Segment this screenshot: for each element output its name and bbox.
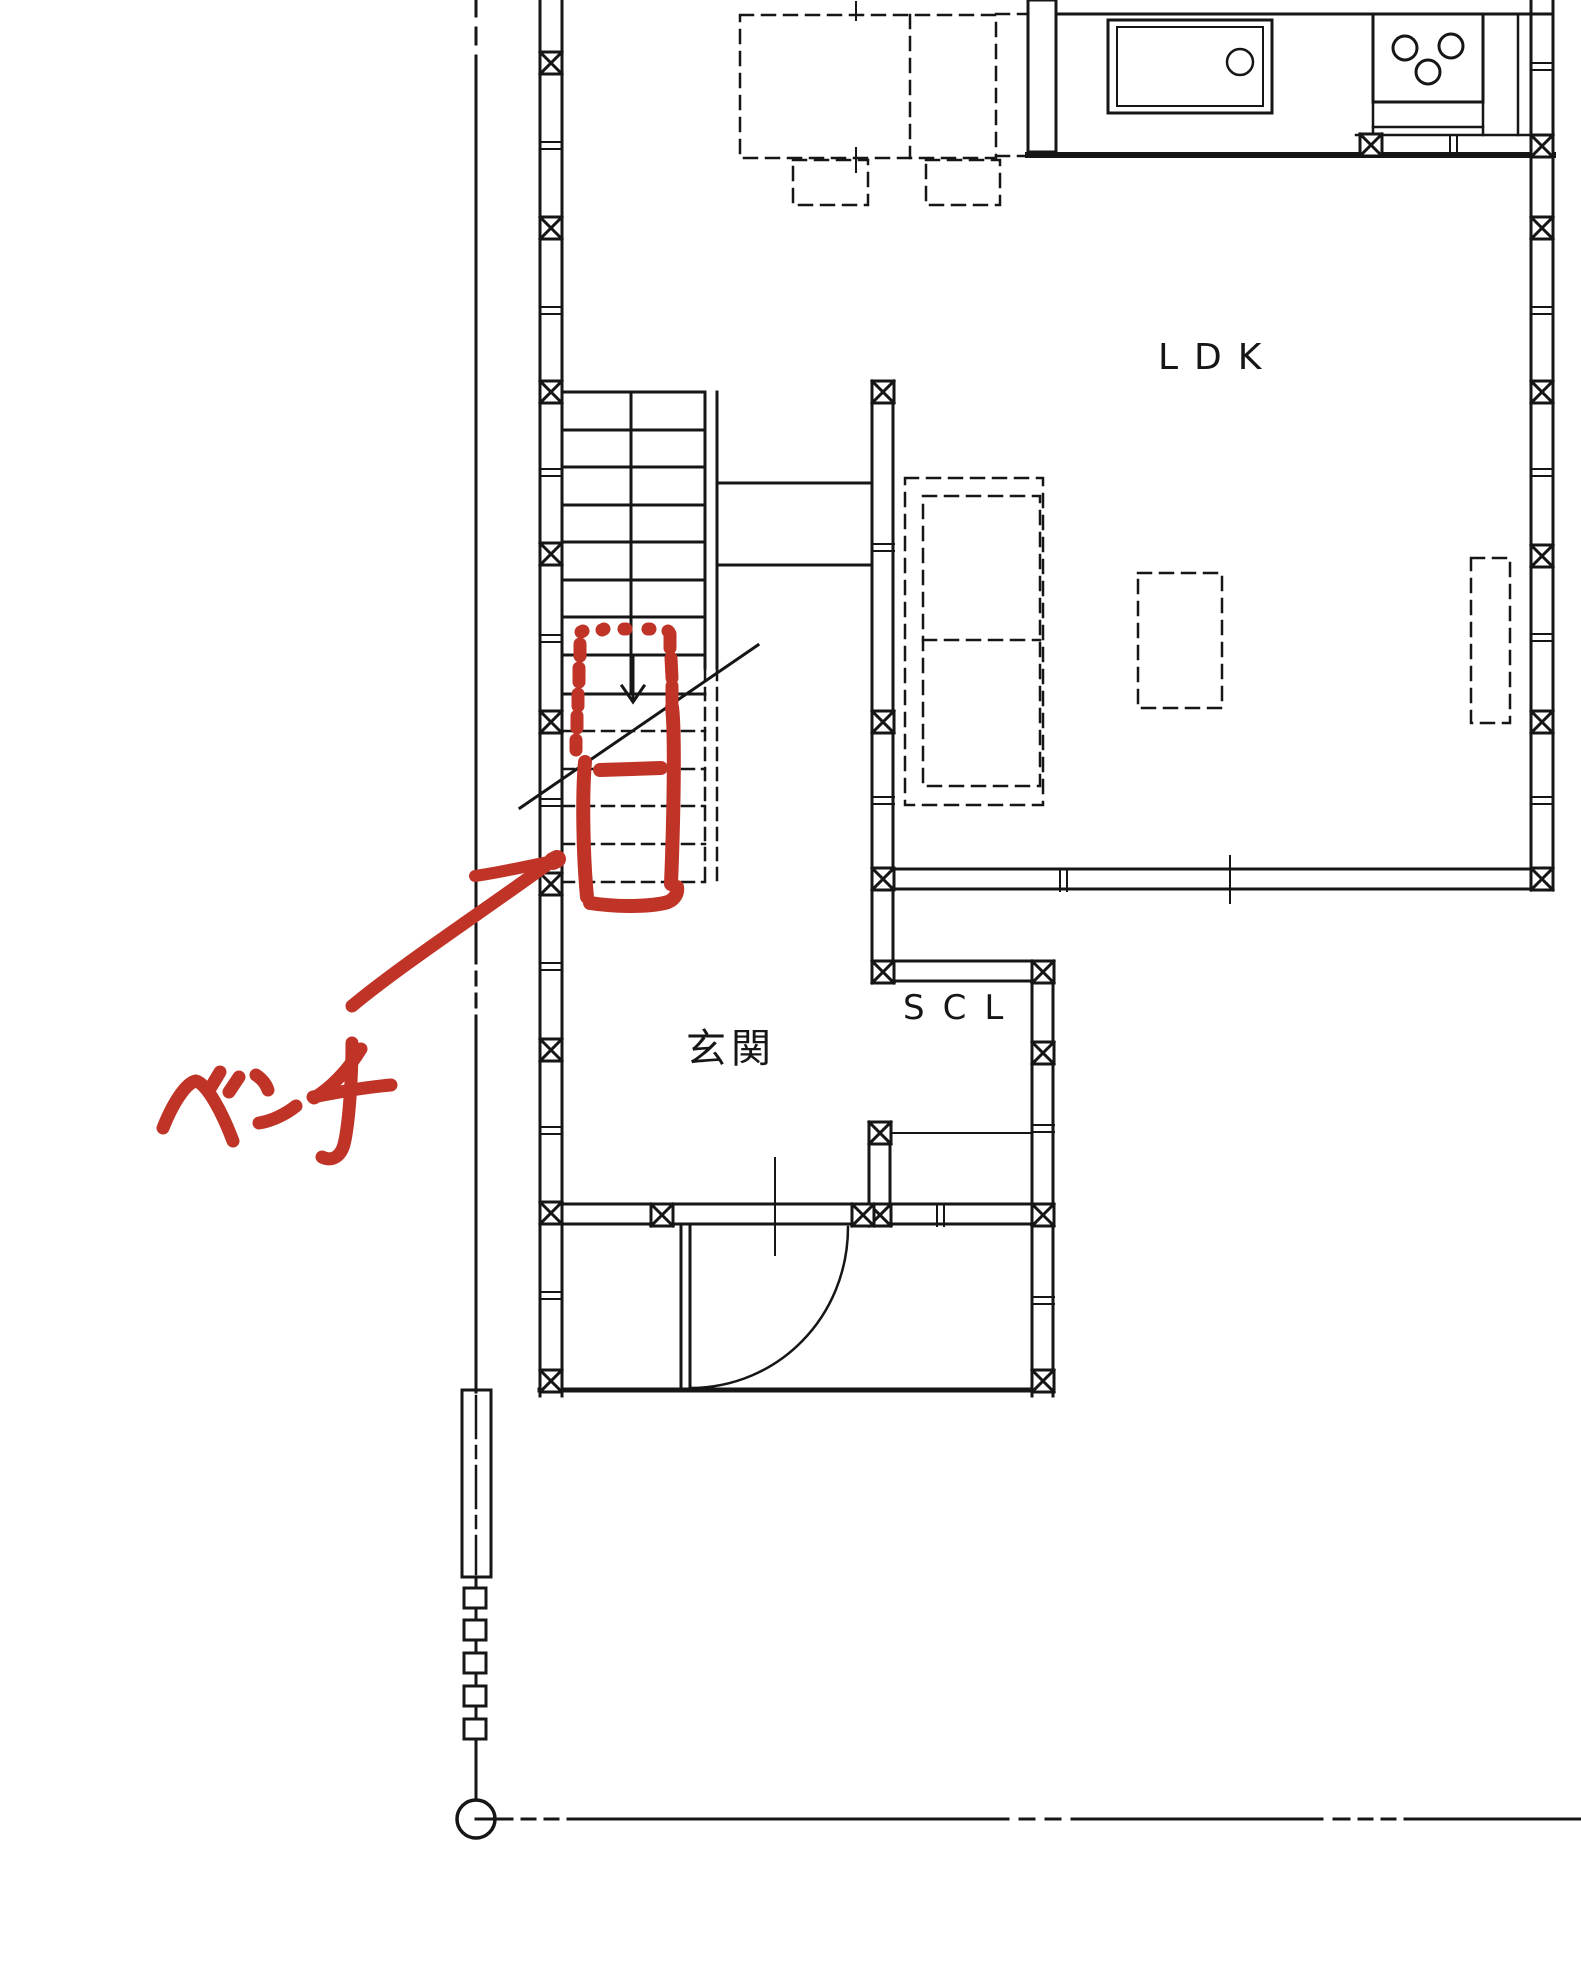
walls [540, 0, 1553, 1396]
bench-annotation-text [163, 1043, 391, 1159]
hall-ldk-wall [872, 383, 893, 983]
stove-burner [1416, 60, 1440, 84]
kitchen [1028, 0, 1553, 155]
ldk-label: LDK [1158, 337, 1277, 378]
stove-burner [1439, 34, 1463, 58]
ldk-bottom-wall [872, 869, 1553, 889]
counter-end-panel [1028, 0, 1056, 152]
furniture-dashed [740, 14, 1510, 805]
genkan-label: 玄関 [686, 1026, 776, 1072]
red-annotations [163, 629, 677, 1159]
site-boundary-line [457, 0, 1581, 1838]
stove-burner [1393, 36, 1417, 60]
entrance-wall [540, 1204, 1053, 1224]
floor-plan-page: LDK SCL 玄関 [0, 0, 1581, 1971]
entrance-door [681, 1225, 848, 1388]
scl-label: SCL [903, 988, 1021, 1028]
coffee-table-dashed [1138, 573, 1222, 708]
scl-top-wall [872, 961, 1053, 981]
chair-dashed [926, 160, 1000, 205]
door-leaf [681, 1225, 690, 1388]
sink-drain [1227, 49, 1253, 75]
upper-landing-lines [717, 483, 872, 565]
wall-posts [540, 52, 1553, 1392]
plan-linework [457, 0, 1581, 1838]
stair-stringer [705, 392, 717, 668]
stove [1373, 14, 1483, 102]
kitchen-sink [1108, 20, 1272, 113]
annotation-arrow [352, 859, 557, 1006]
scl-right-wall [1032, 961, 1053, 1396]
left-wall [540, 0, 562, 1396]
tv-board-dashed [1471, 558, 1510, 723]
wall-studs [540, 63, 1553, 1304]
dining-island-dashed [740, 15, 996, 158]
sofa-dashed [905, 478, 1043, 805]
door-swing-arc [690, 1227, 848, 1388]
staircase [520, 392, 758, 888]
floor-plan-svg: LDK SCL 玄関 [0, 0, 1581, 1971]
